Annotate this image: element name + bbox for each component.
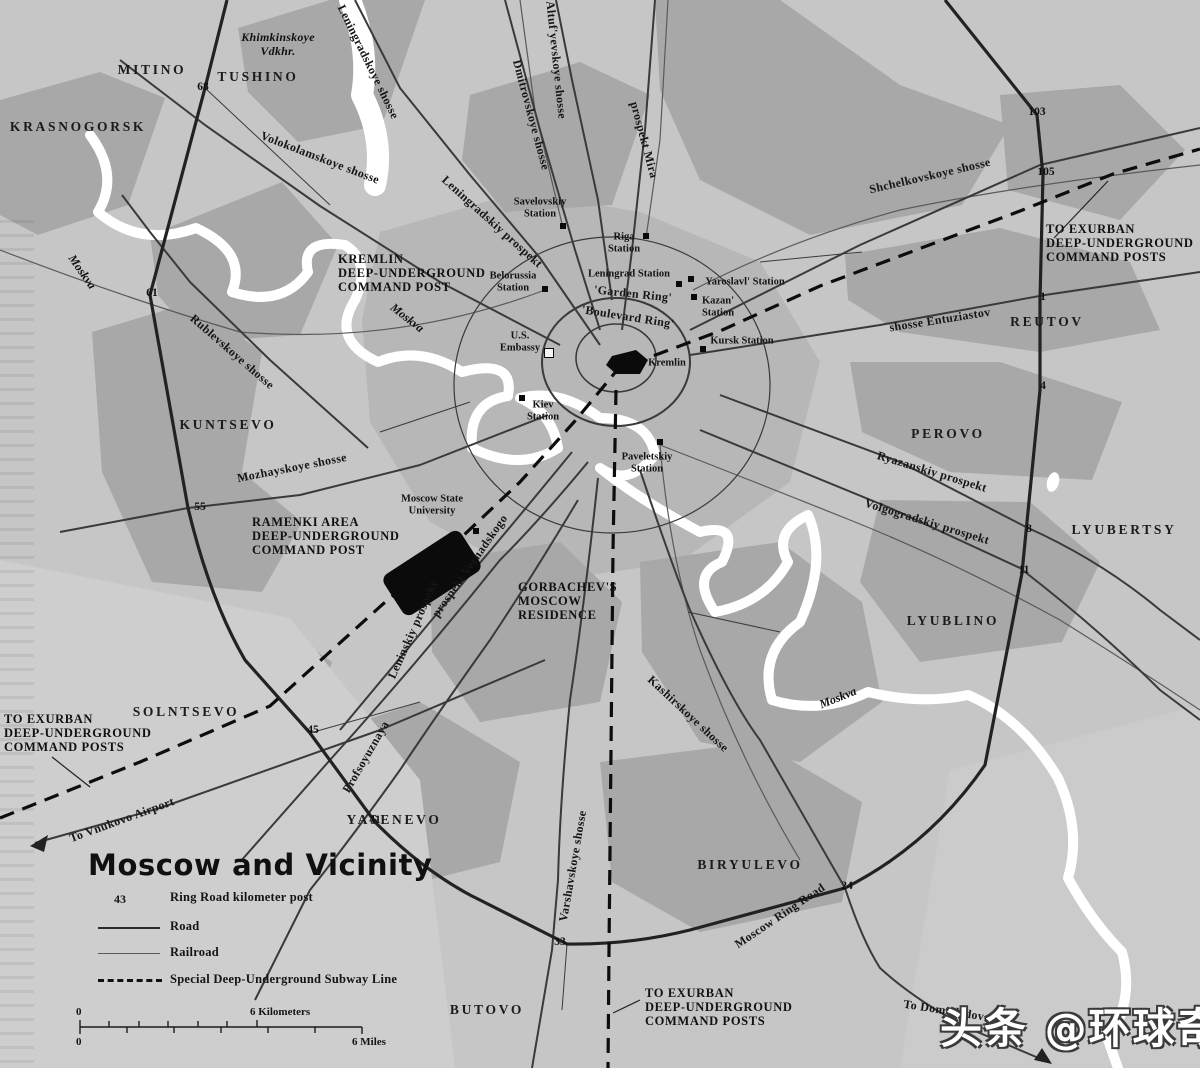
annotation-line: MOSCOW bbox=[518, 594, 617, 608]
road-line-icon bbox=[98, 927, 160, 929]
leningrad-station-marker bbox=[676, 281, 682, 287]
belorussia-station-marker bbox=[542, 286, 548, 292]
paveletskiy-station-marker bbox=[657, 439, 663, 445]
reservoir-label-line: Khimkinskoye bbox=[241, 30, 315, 44]
exurban-south-label: TO EXURBANDEEP-UNDERGROUNDCOMMAND POSTS bbox=[645, 986, 793, 1028]
riga-station-marker bbox=[643, 233, 649, 239]
annotation-line: TO EXURBAN bbox=[4, 712, 152, 726]
km-post-sample: 43 bbox=[114, 892, 126, 906]
reservoir-label-line: Vdkhr. bbox=[241, 44, 315, 58]
annotation-line: TO EXURBAN bbox=[1046, 222, 1194, 236]
annotation-line: RESIDENCE bbox=[518, 608, 617, 622]
kazan-station-marker bbox=[691, 294, 697, 300]
annotation-line: DEEP-UNDERGROUND bbox=[1046, 236, 1194, 250]
us-embassy-marker bbox=[544, 348, 554, 358]
annotation-line: DEEP-UNDERGROUND bbox=[338, 266, 486, 280]
reservoir-label: KhimkinskoyeVdkhr. bbox=[241, 30, 315, 58]
annotation-line: DEEP-UNDERGROUND bbox=[4, 726, 152, 740]
scale-mi-label: 6 Miles bbox=[352, 1036, 386, 1048]
annotation-line: COMMAND POST bbox=[252, 543, 400, 557]
annotation-line: TO EXURBAN bbox=[645, 986, 793, 1000]
railroad-line-icon bbox=[98, 953, 160, 954]
map-title: Moscow and Vicinity bbox=[88, 848, 433, 882]
exurban-southwest-label: TO EXURBANDEEP-UNDERGROUNDCOMMAND POSTS bbox=[4, 712, 152, 754]
annotation-line: KREMLIN bbox=[338, 252, 486, 266]
annotation-line: GORBACHEV'S bbox=[518, 580, 617, 594]
ramenki-command-post-label: RAMENKI AREADEEP-UNDERGROUNDCOMMAND POST bbox=[252, 515, 400, 557]
savelovskiy-station-marker bbox=[560, 223, 566, 229]
legend-subway-label: Special Deep-Underground Subway Line bbox=[170, 972, 397, 987]
kiev-station-marker bbox=[519, 395, 525, 401]
subway-dashed-line-icon bbox=[98, 979, 162, 982]
legend-railroad-label: Railroad bbox=[170, 945, 219, 960]
moscow-vicinity-map: Moscow and Vicinity 43 Ring Road kilomet… bbox=[0, 0, 1200, 1068]
scale-km-zero: 0 bbox=[76, 1006, 82, 1018]
kursk-station-marker bbox=[700, 346, 706, 352]
exurban-northeast-label: TO EXURBANDEEP-UNDERGROUNDCOMMAND POSTS bbox=[1046, 222, 1194, 264]
watermark: 头条 @环球奇潭 bbox=[940, 995, 1200, 1056]
kremlin-command-post-label: KREMLINDEEP-UNDERGROUNDCOMMAND POST bbox=[338, 252, 486, 294]
moscow-state-university-marker bbox=[473, 528, 479, 534]
annotation-line: DEEP-UNDERGROUND bbox=[252, 529, 400, 543]
annotation-line: DEEP-UNDERGROUND bbox=[645, 1000, 793, 1014]
legend-km-post-label: Ring Road kilometer post bbox=[170, 890, 313, 905]
yaroslavl-station-marker bbox=[688, 276, 694, 282]
annotation-line: RAMENKI AREA bbox=[252, 515, 400, 529]
scale-mi-zero: 0 bbox=[76, 1036, 82, 1048]
legend-road-label: Road bbox=[170, 919, 199, 934]
gorbachev-residence-label: GORBACHEV'SMOSCOWRESIDENCE bbox=[518, 580, 617, 622]
annotation-line: COMMAND POST bbox=[338, 280, 486, 294]
annotation-line: COMMAND POSTS bbox=[1046, 250, 1194, 264]
print-bleed-texture bbox=[0, 220, 34, 1068]
scale-km-label: 6 Kilometers bbox=[250, 1006, 310, 1018]
annotation-line: COMMAND POSTS bbox=[645, 1014, 793, 1028]
annotation-line: COMMAND POSTS bbox=[4, 740, 152, 754]
